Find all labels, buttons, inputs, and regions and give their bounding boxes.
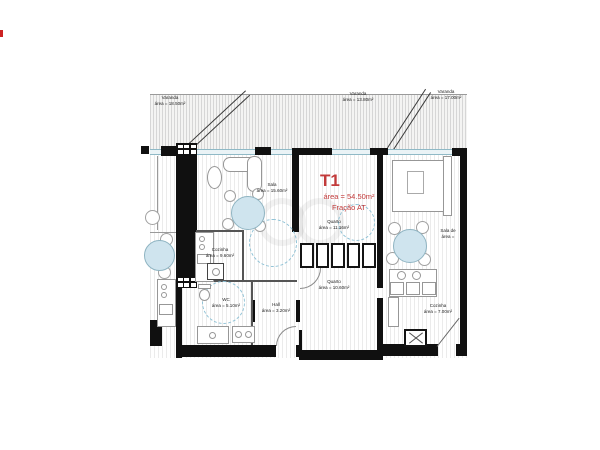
- shower-drain: [209, 332, 216, 339]
- appliance-box: [404, 329, 427, 347]
- wardrobe-cell: [347, 243, 361, 268]
- unit-label: T1 área = 54.50m² Fração AT: [316, 172, 382, 212]
- vanity-basin: [235, 331, 242, 338]
- wall-bottom: [176, 345, 276, 357]
- side-table: [207, 166, 222, 189]
- room-label-cozinha-right: Cozinha área = 7.00m²: [418, 303, 458, 315]
- wardrobe-cell: [300, 243, 314, 268]
- wardrobe-cell: [362, 243, 376, 268]
- room-area: área = 13.80m²: [334, 97, 382, 103]
- room-label-cozinha: Cozinha área = 9.60m²: [200, 247, 240, 259]
- wall-bottom: [456, 344, 467, 356]
- dining-table: [231, 196, 265, 230]
- room-area: área =: [434, 234, 462, 240]
- bed-pillow: [407, 171, 424, 194]
- room-area: área = 17.00m²: [422, 95, 470, 101]
- vanity-basin: [245, 331, 252, 338]
- wardrobe-row: [300, 243, 376, 268]
- room-label-hall: Hall área = 3.20m²: [256, 302, 296, 314]
- wall-segment: [255, 147, 271, 155]
- room-label-quarto-top: Quarto área = 11.16m²: [312, 219, 356, 231]
- room-label-varanda-right: Varanda área = 17.00m²: [422, 89, 470, 101]
- wall-center-right: [377, 150, 383, 288]
- counter-module: [422, 282, 436, 295]
- room-area: área = 9.60m²: [200, 253, 240, 259]
- counter-column: [388, 297, 399, 327]
- room-label-sala: Sala área = 15.60m²: [250, 182, 294, 194]
- sink-basin: [397, 271, 406, 280]
- wardrobe-cell: [316, 243, 330, 268]
- room-area: área = 5.10m²: [206, 303, 246, 309]
- room-area: área = 11.16m²: [312, 225, 356, 231]
- wall-segment: [141, 146, 149, 154]
- unit-fraction: Fração AT: [316, 203, 382, 212]
- chair: [145, 210, 160, 225]
- wall-stub: [299, 330, 302, 350]
- room-area: área = 7.00m²: [418, 309, 458, 315]
- shaft-grid-top: [176, 143, 197, 155]
- unit-code: T1: [316, 172, 382, 189]
- wardrobe-cell: [331, 243, 345, 268]
- counter-module: [159, 304, 173, 315]
- room-label-wc: WC área = 5.10m²: [206, 297, 246, 309]
- wall-bottom: [299, 350, 383, 360]
- sink-basin: [412, 271, 421, 280]
- room-label-sala-right: Sala de área =: [434, 228, 462, 240]
- chair: [224, 190, 236, 202]
- room-area: área = 10.60m²: [312, 285, 356, 291]
- counter-module: [406, 282, 420, 295]
- counter-module: [390, 282, 404, 295]
- kitchen-right-wall: [242, 230, 244, 282]
- dining-table-right: [393, 229, 427, 263]
- unit-area: área = 54.50m²: [316, 192, 382, 201]
- dining-table-left: [144, 240, 175, 271]
- room-area: área = 18.50m²: [146, 101, 194, 107]
- room-label-varanda-mid: Varanda área = 13.80m²: [334, 91, 382, 103]
- corner-mark: [0, 30, 3, 37]
- room-label-quarto-bottom: Quarto área = 10.60m²: [312, 279, 356, 291]
- floor-plan: Varanda área = 18.50m² Varanda área = 13…: [0, 0, 600, 450]
- sink-basin: [199, 236, 205, 242]
- room-area: área = 15.60m²: [250, 188, 294, 194]
- washing-machine-drum: [212, 268, 220, 276]
- sink-basin: [161, 292, 167, 298]
- shaft-grid-bottom: [176, 276, 197, 288]
- room-label-varanda-left: Varanda área = 18.50m²: [146, 95, 194, 107]
- wall-right-edge: [460, 150, 467, 356]
- wall-column-left: [176, 143, 197, 288]
- room-area: área = 3.20m²: [256, 308, 296, 314]
- wall-hall-quarto: [296, 300, 300, 322]
- sink-basin: [161, 284, 167, 290]
- bed-headboard: [443, 156, 452, 216]
